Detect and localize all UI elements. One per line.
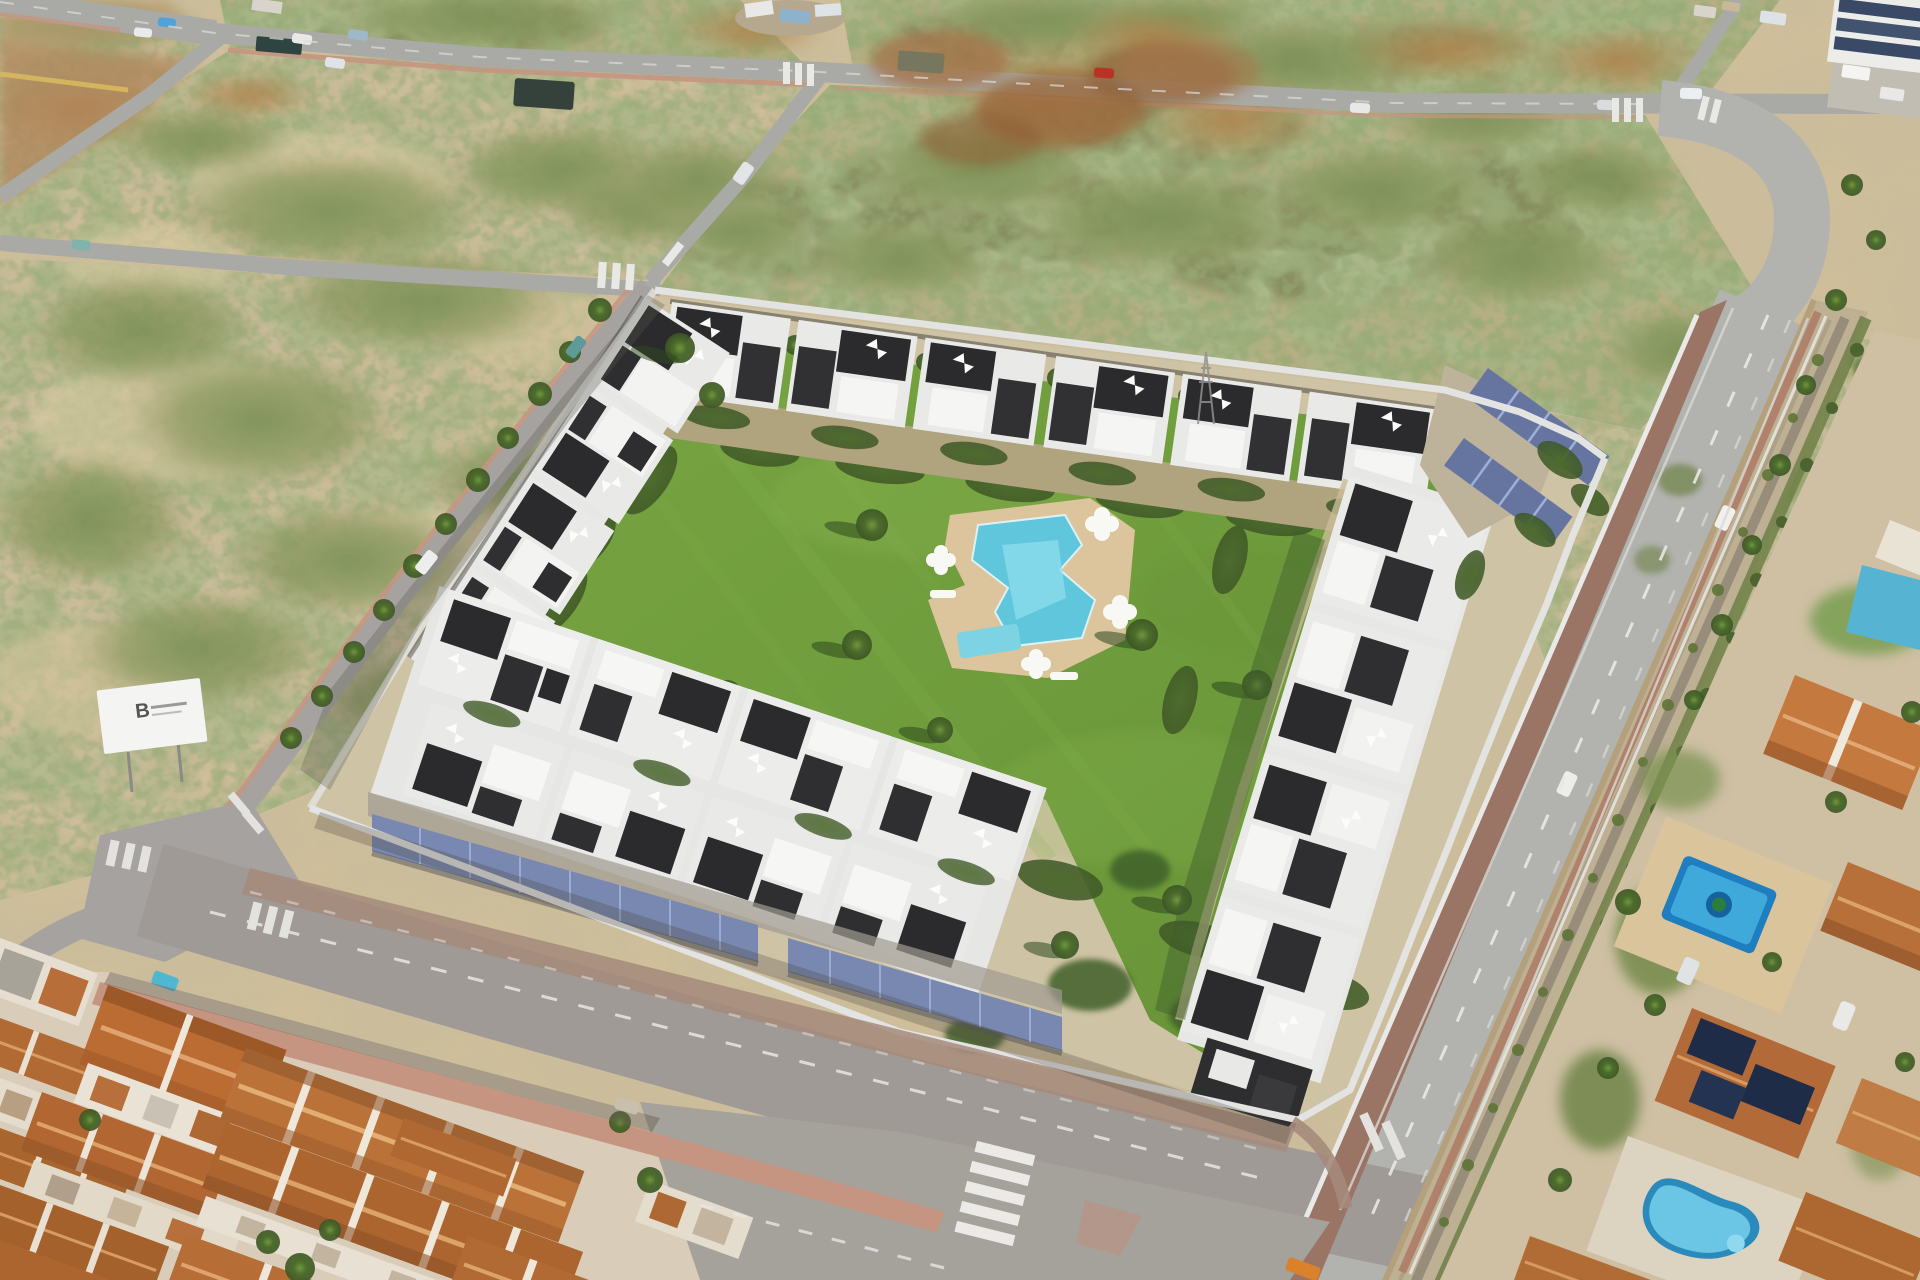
svg-text:B: B [134,699,151,723]
